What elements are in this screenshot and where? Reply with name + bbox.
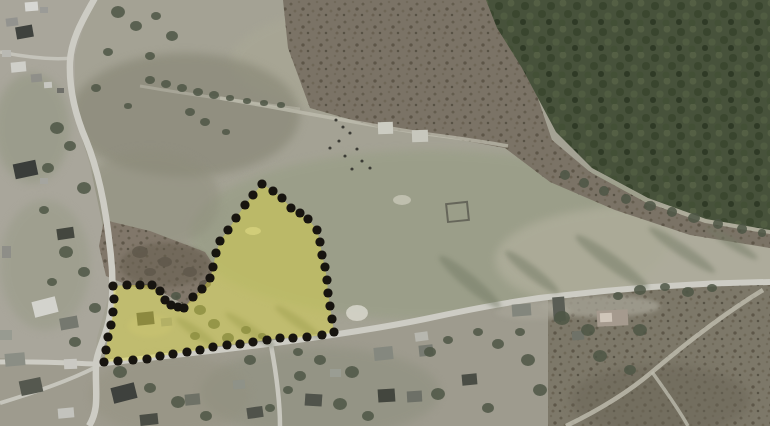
building xyxy=(2,246,11,258)
tree xyxy=(158,257,172,267)
boundary-dot xyxy=(322,275,331,284)
building xyxy=(0,330,12,340)
boundary-dot xyxy=(113,356,122,365)
tree xyxy=(111,6,125,18)
sand-patch-2 xyxy=(393,195,411,205)
tree xyxy=(560,170,570,180)
building xyxy=(600,313,612,323)
boundary-dot xyxy=(211,248,220,257)
building xyxy=(25,1,39,11)
building xyxy=(2,50,11,57)
building xyxy=(378,388,396,402)
boundary-dot xyxy=(147,280,156,289)
tree xyxy=(144,268,156,276)
tree xyxy=(492,339,504,349)
tree xyxy=(39,206,49,214)
tree xyxy=(431,388,445,400)
tree xyxy=(222,129,230,135)
ground-speck xyxy=(334,118,337,121)
tree xyxy=(103,48,113,56)
boundary-dot xyxy=(223,225,232,234)
tree xyxy=(260,100,268,106)
tree xyxy=(443,336,453,344)
building xyxy=(40,178,48,184)
tree xyxy=(77,182,91,194)
boundary-dot xyxy=(168,349,177,358)
tree xyxy=(424,347,436,357)
tree xyxy=(177,84,187,92)
tree xyxy=(171,396,185,408)
tree xyxy=(613,292,623,300)
building xyxy=(233,379,246,389)
aerial-map-view xyxy=(0,0,770,426)
tree xyxy=(200,118,210,126)
ground-speck xyxy=(350,167,353,170)
tree xyxy=(554,311,570,325)
tree xyxy=(707,284,717,292)
tree xyxy=(166,31,178,41)
boundary-dot xyxy=(329,327,338,336)
boundary-dot xyxy=(317,250,326,259)
boundary-dot xyxy=(248,337,257,346)
tree xyxy=(193,88,203,96)
boundary-dot xyxy=(288,333,297,342)
tree xyxy=(277,102,285,108)
boundary-dot xyxy=(188,292,197,301)
building xyxy=(58,407,75,418)
tree xyxy=(151,12,161,20)
tree xyxy=(345,366,359,378)
boundary-dot xyxy=(182,347,191,356)
boundary-dot xyxy=(135,280,144,289)
boundary-dot xyxy=(286,203,295,212)
boundary-dot xyxy=(235,339,244,348)
boundary-dot xyxy=(231,213,240,222)
building xyxy=(462,373,478,385)
boundary-dot xyxy=(142,354,151,363)
tree xyxy=(69,337,81,347)
boundary-dot xyxy=(257,179,266,188)
tree xyxy=(682,287,694,297)
boundary-dot xyxy=(109,294,118,303)
tree xyxy=(515,328,525,336)
building xyxy=(40,7,48,13)
boundary-dot xyxy=(277,193,286,202)
tree xyxy=(579,178,589,188)
building xyxy=(6,17,19,27)
ground-speck xyxy=(343,154,346,157)
boundary-dot xyxy=(208,262,217,271)
tree xyxy=(78,267,90,277)
building xyxy=(44,82,52,89)
building xyxy=(11,61,27,72)
tree xyxy=(283,386,293,394)
boundary-dot xyxy=(197,284,206,293)
boundary-dot xyxy=(215,236,224,245)
building xyxy=(57,88,64,93)
tree xyxy=(89,303,101,313)
tree xyxy=(473,328,483,336)
boundary-dot xyxy=(327,314,336,323)
boundary-dot xyxy=(155,351,164,360)
tree xyxy=(226,95,234,101)
tree xyxy=(667,207,677,217)
boundary-dot xyxy=(195,345,204,354)
tree xyxy=(161,80,171,88)
boundary-dot xyxy=(315,237,324,246)
boundary-dot xyxy=(155,286,164,295)
boundary-dot xyxy=(303,214,312,223)
tree xyxy=(91,84,101,92)
tree xyxy=(362,411,374,421)
sand-patch-1 xyxy=(346,305,368,321)
boundary-dot xyxy=(302,332,311,341)
tree xyxy=(758,229,766,237)
tree xyxy=(145,52,155,60)
tree xyxy=(634,285,646,295)
tree xyxy=(64,141,76,151)
tree xyxy=(124,103,132,109)
tree xyxy=(688,213,700,223)
boundary-dot xyxy=(108,307,117,316)
boundary-dot xyxy=(275,333,284,342)
boundary-dot xyxy=(122,280,131,289)
aerial-photo xyxy=(0,0,770,426)
boundary-dot xyxy=(99,357,108,366)
tree xyxy=(244,355,256,365)
boundary-dot xyxy=(240,200,249,209)
tree xyxy=(50,122,64,134)
building xyxy=(373,346,393,361)
tree xyxy=(737,224,747,234)
boundary-dot xyxy=(295,208,304,217)
ground-speck xyxy=(328,146,331,149)
tree xyxy=(185,108,195,116)
building xyxy=(305,393,323,406)
tree xyxy=(660,283,670,291)
ground-speck xyxy=(348,131,351,134)
building xyxy=(512,303,532,316)
tree xyxy=(209,91,219,99)
tree xyxy=(581,324,595,336)
boundary-dot xyxy=(312,225,321,234)
tree xyxy=(633,324,647,336)
tree xyxy=(599,186,609,196)
boundary-dot xyxy=(320,262,329,271)
tree xyxy=(293,348,303,356)
tree xyxy=(59,246,73,258)
building xyxy=(414,331,428,342)
tree xyxy=(132,246,148,258)
tree xyxy=(144,383,156,393)
boundary-dot xyxy=(106,320,115,329)
tree xyxy=(314,355,326,365)
tree xyxy=(624,365,636,375)
boundary-dot xyxy=(248,190,257,199)
boundary-dot xyxy=(262,335,271,344)
tree xyxy=(47,278,57,286)
tree xyxy=(265,404,275,412)
boundary-dot xyxy=(268,186,277,195)
boundary-dot xyxy=(323,288,332,297)
tree xyxy=(113,366,127,378)
tree xyxy=(42,163,54,173)
boundary-dot xyxy=(208,342,217,351)
building xyxy=(185,393,201,405)
building xyxy=(139,413,158,426)
boundary-dot xyxy=(205,273,214,282)
tree xyxy=(482,403,494,413)
ground-speck xyxy=(368,166,371,169)
boundary-dot xyxy=(222,340,231,349)
tree xyxy=(130,21,142,31)
tree xyxy=(521,354,535,366)
tree xyxy=(171,292,181,300)
boundary-dot xyxy=(128,355,137,364)
tree xyxy=(200,411,212,421)
building xyxy=(246,406,263,419)
building xyxy=(378,122,393,135)
tree xyxy=(145,76,155,84)
boundary-dot xyxy=(179,303,188,312)
tree xyxy=(294,371,306,381)
ground-speck xyxy=(360,159,363,162)
tree xyxy=(644,201,656,211)
ground-speck xyxy=(341,125,344,128)
tree xyxy=(713,219,723,229)
tree xyxy=(183,267,197,277)
tree xyxy=(243,98,251,104)
ground-speck xyxy=(337,139,340,142)
tree xyxy=(593,350,607,362)
ground-speck xyxy=(355,147,358,150)
building xyxy=(64,359,78,370)
building xyxy=(407,391,423,403)
tree xyxy=(621,194,631,204)
boundary-dot xyxy=(317,330,326,339)
tree xyxy=(533,384,547,396)
boundary-dot xyxy=(103,332,112,341)
building xyxy=(330,369,341,377)
boundary-dot xyxy=(108,281,117,290)
building xyxy=(4,352,25,367)
building xyxy=(56,227,74,240)
boundary-dot xyxy=(325,301,334,310)
tree xyxy=(333,398,347,410)
building xyxy=(31,73,43,82)
building xyxy=(412,130,428,143)
boundary-dot xyxy=(101,345,110,354)
